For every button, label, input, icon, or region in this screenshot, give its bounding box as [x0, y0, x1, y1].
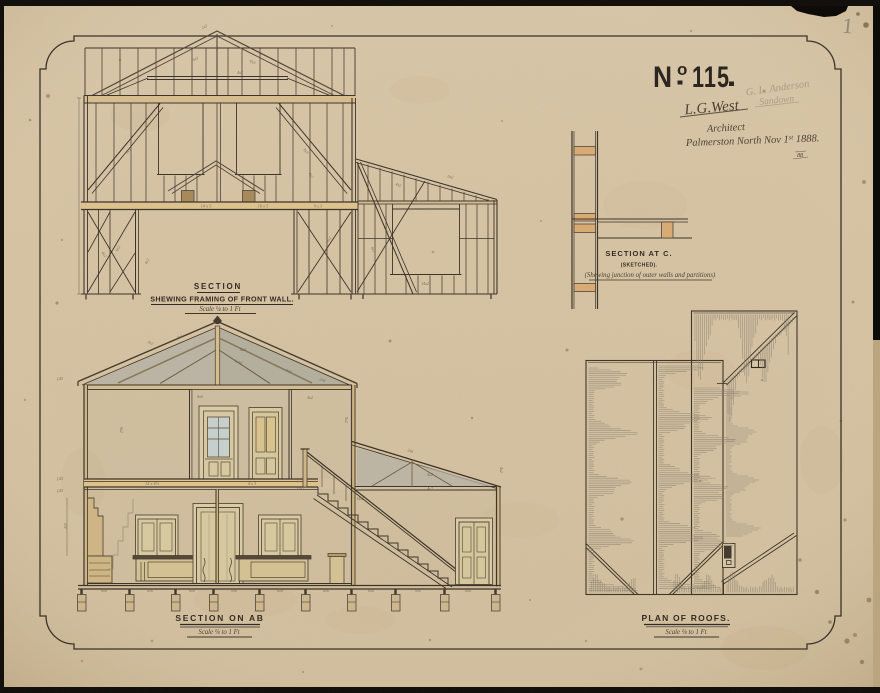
svg-text:12 x 4½: 12 x 4½ [145, 481, 160, 486]
svg-text:f.43: f.43 [57, 376, 63, 381]
svg-text:Architect: Architect [706, 122, 747, 135]
svg-text:14x2: 14x2 [421, 281, 429, 286]
svg-text:Scale ⅛ to 1 Ft: Scale ⅛ to 1 Ft [665, 629, 707, 636]
svg-text:9x2: 9x2 [344, 417, 349, 423]
svg-text:6x6: 6x6 [189, 589, 195, 593]
svg-text:(SKETCHED).: (SKETCHED). [621, 263, 658, 269]
svg-text:o: o [677, 60, 687, 79]
svg-text:SECTION AT C.: SECTION AT C. [605, 249, 672, 258]
svg-text:8x5: 8x5 [197, 394, 203, 399]
svg-text:SECTION ON AB: SECTION ON AB [175, 613, 264, 623]
svg-text:f.43: f.43 [57, 488, 63, 493]
svg-text:SHEWING FRAMING OF FRONT WALL.: SHEWING FRAMING OF FRONT WALL. [150, 295, 293, 304]
svg-text:14x2: 14x2 [356, 496, 364, 501]
svg-text:4x2: 4x2 [427, 486, 433, 491]
svg-text:6x6: 6x6 [147, 589, 153, 593]
svg-text:4 x 3: 4 x 3 [248, 481, 257, 486]
svg-text:4x2: 4x2 [307, 395, 313, 400]
svg-text:Scale ⅛ to 1 Ft: Scale ⅛ to 1 Ft [198, 629, 240, 636]
svg-text:N: N [653, 59, 672, 93]
svg-text:6x6: 6x6 [368, 589, 374, 593]
svg-text:6x2: 6x2 [240, 347, 246, 352]
svg-text:16 x 5: 16 x 5 [258, 204, 270, 209]
svg-text:14 x 5: 14 x 5 [201, 204, 213, 209]
svg-text:4x2: 4x2 [237, 70, 243, 75]
svg-text:f.43: f.43 [57, 476, 63, 481]
svg-text:(Shewing junction of outer wal: (Shewing junction of outer walls and par… [585, 272, 716, 279]
svg-text:6x6: 6x6 [101, 589, 107, 593]
svg-text:4x2: 4x2 [499, 467, 504, 473]
svg-text:6x6: 6x6 [277, 589, 283, 593]
svg-text:6x6: 6x6 [323, 589, 329, 593]
svg-text:6x6: 6x6 [465, 589, 471, 593]
svg-text:SECTION: SECTION [194, 282, 242, 291]
svg-text:9 x 3: 9 x 3 [314, 204, 322, 209]
svg-text:9x2: 9x2 [119, 427, 124, 433]
svg-text:PLAN OF ROOFS.: PLAN OF ROOFS. [641, 613, 730, 623]
svg-text:12x2: 12x2 [296, 486, 304, 491]
svg-text:Scale ¼ to 1 Ft: Scale ¼ to 1 Ft [199, 306, 241, 313]
svg-text:4x2: 4x2 [427, 472, 433, 477]
svg-text:6x6: 6x6 [231, 589, 237, 593]
svg-text:115: 115 [692, 59, 730, 93]
svg-text:6x6: 6x6 [415, 589, 421, 593]
